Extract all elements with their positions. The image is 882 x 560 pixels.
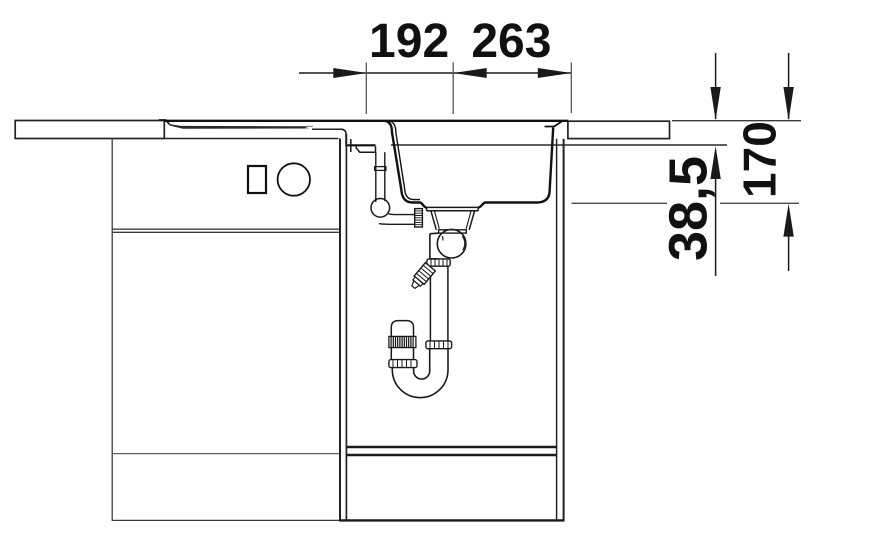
svg-text:38,5: 38,5 [659, 156, 719, 261]
svg-text:192: 192 [369, 15, 449, 68]
svg-text:170: 170 [734, 121, 786, 198]
svg-text:263: 263 [471, 15, 551, 68]
